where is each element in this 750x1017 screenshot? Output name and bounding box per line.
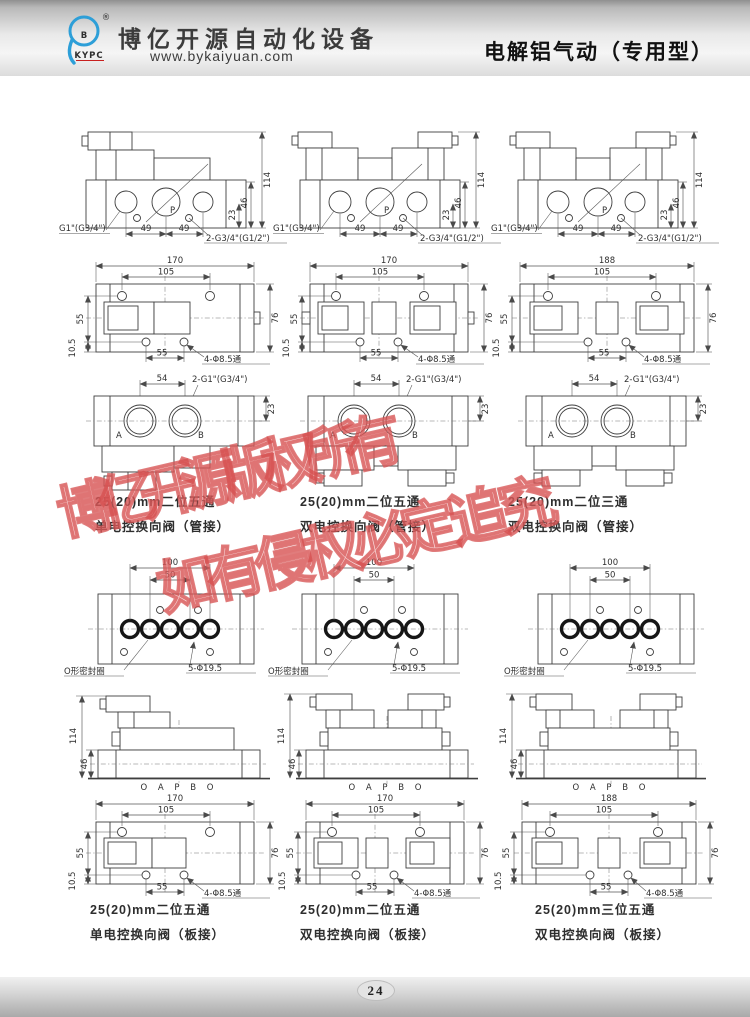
- dim-label: 23: [699, 404, 709, 415]
- logo-b-letter: B: [81, 31, 87, 41]
- caption-block: 25(20)mm二位三通 双电控换向阀（管接）: [508, 490, 643, 540]
- caption-block: 25(20)mm二位五通 双电控换向阀（板接）: [300, 898, 435, 948]
- caption-line2: 双电控换向阀（管接）: [508, 515, 643, 540]
- port-label: P: [170, 206, 175, 216]
- dim-label: 10.5: [494, 872, 504, 891]
- dim-label: 55: [371, 349, 382, 359]
- dim-label: 105: [596, 806, 612, 816]
- dim-label: 46: [454, 198, 464, 209]
- dim-label: 55: [76, 314, 86, 325]
- drawing-top-view-single-solenoid: P 114 46 23 49 49 G1"(G3/4") 2-G3/4"(G1/…: [58, 118, 288, 244]
- company-logo: B ® KYPC: [58, 10, 112, 68]
- dim-label: 50: [605, 571, 616, 581]
- dim-label: 100: [602, 558, 618, 568]
- dim-label: 105: [158, 268, 174, 278]
- dim-label: 188: [599, 256, 615, 266]
- caption-line2: 双电控换向阀（板接）: [535, 923, 670, 948]
- drawing-oring-plate: 100 50 O形密封圈 5-Φ19.5: [498, 552, 728, 680]
- dim-label: 10.5: [282, 339, 292, 358]
- catalog-page: B ® KYPC 博亿开源自动化设备 www.bykaiyuan.com 电解铝…: [0, 0, 750, 1017]
- drawing-bottom-view-double: 54 2-G1"(G3/4") A B 23: [272, 370, 502, 496]
- oring-label: O形密封圈: [64, 666, 105, 677]
- dim-label: 55: [157, 349, 168, 359]
- dim-label: 49: [141, 224, 152, 234]
- dim-label: 49: [393, 224, 404, 234]
- dim-label: 54: [589, 374, 600, 384]
- dim-label: 23: [228, 210, 238, 221]
- caption-line2: 双电控换向阀（板接）: [300, 923, 435, 948]
- dim-label: 54: [157, 374, 168, 384]
- dim-label: 114: [477, 172, 487, 188]
- dim-label: 10.5: [68, 872, 78, 891]
- page-title: 电解铝气动（专用型）: [484, 36, 714, 66]
- drawing-plan-170-double: 170 105 55 10.5 76 55 4-Φ8.5通: [272, 246, 502, 366]
- dim-label: 114: [277, 728, 287, 744]
- drawing-top-view-double-solenoid-3way: P 114 46 23 49 49 G1"(G3/4") 2-G3/4"(G1/…: [490, 118, 720, 244]
- caption-line2: 单电控换向阀（管接）: [95, 515, 230, 540]
- dim-label: 55: [599, 349, 610, 359]
- dim-label: 50: [165, 571, 176, 581]
- holes-label: 5-Φ19.5: [392, 664, 426, 674]
- dim-label: 55: [500, 314, 510, 325]
- port-label: P: [384, 206, 389, 216]
- port-thread-label: G1"(G3/4"): [273, 224, 320, 234]
- logo-kypc-label: KYPC: [74, 51, 103, 61]
- port-thread-label: 2-G1"(G3/4"): [192, 375, 248, 385]
- port-thread-label: 2-G1"(G3/4"): [624, 375, 680, 385]
- port-label: B: [412, 431, 418, 441]
- dim-label: 46: [288, 759, 298, 770]
- drawing-front-view-double: 114 46 O A P B O: [268, 686, 498, 794]
- caption-line1: 25(20)mm三位五通: [535, 898, 670, 923]
- drawing-plan-170-single: 170 105 55 10.5 76 55 4-Φ8.5通: [58, 246, 288, 366]
- caption-block: 25(20)mm二位五通 单电控换向阀（管接）: [95, 490, 230, 540]
- dim-label: 55: [367, 883, 378, 893]
- port-label: A: [330, 431, 336, 441]
- dim-label: 49: [355, 224, 366, 234]
- dim-label: 188: [601, 794, 617, 804]
- dim-label: 23: [442, 210, 452, 221]
- port-label: B: [198, 431, 204, 441]
- dim-label: 100: [366, 558, 382, 568]
- caption-line2: 双电控换向阀（管接）: [300, 515, 435, 540]
- dim-label: 170: [167, 794, 183, 804]
- dim-label: 55: [502, 848, 512, 859]
- caption-line1: 25(20)mm二位五通: [95, 490, 230, 515]
- port-thread-label: G1"(G3/4"): [491, 224, 538, 234]
- drawing-plate-plan-170-double: 170 105 55 10.5 76 55 4-Φ8.5通: [268, 790, 498, 900]
- port-thread-label: 2-G3/4"(G1/2"): [206, 234, 270, 244]
- page-number-badge: 24: [357, 980, 395, 1001]
- port-label: A: [548, 431, 554, 441]
- caption-line1: 25(20)mm二位五通: [300, 490, 435, 515]
- page-footer: 24: [0, 977, 750, 1017]
- drawing-bottom-view-double-3way: 54 2-G1"(G3/4") A B 23: [490, 370, 720, 496]
- port-label: A: [116, 431, 122, 441]
- page-header: B ® KYPC 博亿开源自动化设备 www.bykaiyuan.com 电解铝…: [0, 0, 750, 76]
- dim-label: 170: [377, 794, 393, 804]
- caption-line1: 25(20)mm二位三通: [508, 490, 643, 515]
- port-label: P: [602, 206, 607, 216]
- port-thread-label: 2-G3/4"(G1/2"): [420, 234, 484, 244]
- dim-label: 114: [695, 172, 705, 188]
- port-thread-label: 2-G1"(G3/4"): [406, 375, 462, 385]
- dim-label: 49: [179, 224, 190, 234]
- dim-label: 76: [709, 313, 719, 324]
- dim-label: 105: [372, 268, 388, 278]
- drawing-plate-plan-188-double: 188 105 55 10.5 76 55 4-Φ8.5通: [492, 790, 728, 900]
- dim-label: 170: [381, 256, 397, 266]
- caption-block: 25(20)mm二位五通 双电控换向阀（管接）: [300, 490, 435, 540]
- drawing-bottom-view-single: 54 2-G1"(G3/4") A B 23: [58, 370, 288, 496]
- drawing-front-view-single: 114 46 O A P B O: [60, 686, 290, 794]
- dim-label: 114: [69, 728, 79, 744]
- dim-label: 50: [369, 571, 380, 581]
- dim-label: 55: [157, 883, 168, 893]
- caption-line2: 单电控换向阀（板接）: [90, 923, 225, 948]
- dim-label: 76: [481, 848, 491, 859]
- dim-label: 114: [499, 728, 509, 744]
- caption-line1: 25(20)mm二位五通: [300, 898, 435, 923]
- dim-label: 46: [672, 198, 682, 209]
- dim-label: 55: [290, 314, 300, 325]
- dim-label: 46: [80, 759, 90, 770]
- port-label: B: [630, 431, 636, 441]
- drawing-plan-188-double: 188 105 55 10.5 76 55 4-Φ8.5通: [490, 246, 726, 366]
- drawing-plate-plan-170-single: 170 105 55 10.5 76 55 4-Φ8.5通: [58, 790, 288, 900]
- caption-line1: 25(20)mm二位五通: [90, 898, 225, 923]
- drawing-oring-plate: 100 50 O形密封圈 5-Φ19.5: [58, 552, 288, 680]
- dim-label: 55: [76, 848, 86, 859]
- holes-label: 4-Φ8.5通: [418, 354, 456, 365]
- drawing-oring-plate: 100 50 O形密封圈 5-Φ19.5: [262, 552, 492, 680]
- dim-label: 10.5: [278, 872, 288, 891]
- dim-label: 49: [573, 224, 584, 234]
- oring-label: O形密封圈: [268, 666, 309, 677]
- dim-label: 76: [711, 848, 721, 859]
- dim-label: 55: [286, 848, 296, 859]
- company-website[interactable]: www.bykaiyuan.com: [150, 48, 294, 64]
- holes-label: 4-Φ8.5通: [644, 354, 682, 365]
- caption-block: 25(20)mm三位五通 双电控换向阀（板接）: [535, 898, 670, 948]
- dim-label: 105: [594, 268, 610, 278]
- drawing-top-view-double-solenoid: P 114 46 23 49 49 G1"(G3/4") 2-G3/4"(G1/…: [272, 118, 502, 244]
- dim-label: 54: [371, 374, 382, 384]
- drawing-front-view-3position: 114 46 O A P B O: [492, 686, 722, 794]
- dim-label: 105: [158, 806, 174, 816]
- dim-label: 170: [167, 256, 183, 266]
- logo-registered-icon: ®: [102, 13, 111, 23]
- caption-block: 25(20)mm二位五通 单电控换向阀（板接）: [90, 898, 225, 948]
- port-thread-label: G1"(G3/4"): [59, 224, 106, 234]
- dim-label: 10.5: [492, 339, 502, 358]
- holes-label: 5-Φ19.5: [188, 664, 222, 674]
- holes-label: 4-Φ8.5通: [204, 354, 242, 365]
- dim-label: 55: [601, 883, 612, 893]
- dim-label: 10.5: [68, 339, 78, 358]
- holes-label: 5-Φ19.5: [628, 664, 662, 674]
- dim-label: 23: [660, 210, 670, 221]
- dim-label: 100: [162, 558, 178, 568]
- port-thread-label: 2-G3/4"(G1/2"): [638, 234, 702, 244]
- dim-label: 105: [368, 806, 384, 816]
- dim-label: 46: [510, 759, 520, 770]
- dim-label: 46: [240, 198, 250, 209]
- oring-label: O形密封圈: [504, 666, 545, 677]
- dim-label: 49: [611, 224, 622, 234]
